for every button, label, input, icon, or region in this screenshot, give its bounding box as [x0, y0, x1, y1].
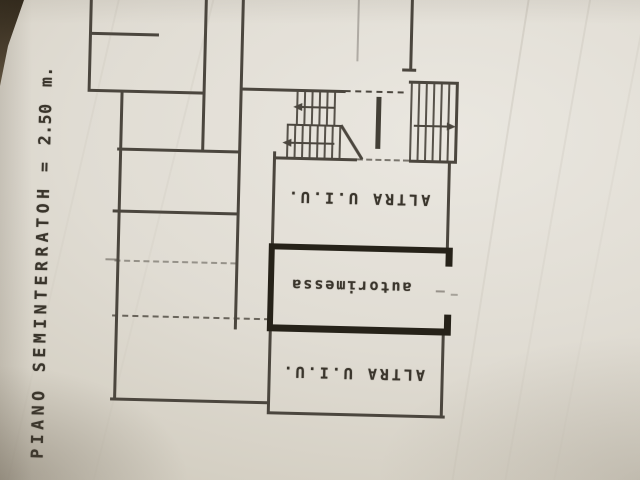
garage-wall-hook	[444, 315, 452, 336]
garage-wall-bottom	[267, 324, 451, 335]
wall	[267, 411, 445, 418]
wall	[88, 0, 93, 91]
wall	[113, 209, 240, 215]
stair-diagonal-cut-line	[340, 125, 363, 160]
wall	[356, 0, 360, 61]
wall	[201, 0, 207, 152]
staircase-central-upper-treads	[296, 91, 341, 127]
paper-tilt-wrapper: PIANO SEMINTERRATO H = 2.50 m.	[0, 0, 640, 480]
stair-arrow-left-icon	[293, 102, 302, 110]
wall	[110, 397, 269, 404]
wall	[117, 148, 240, 154]
stair-arrow-left-icon	[282, 138, 291, 146]
stair-arrow-right-icon	[447, 122, 456, 130]
wall	[240, 0, 245, 90]
photographed-floor-plan: PIANO SEMINTERRATO H = 2.50 m.	[0, 0, 640, 480]
garage-wall-hook	[445, 248, 452, 267]
wall-dashed	[357, 158, 409, 161]
wall-dashed	[112, 314, 270, 320]
wall	[89, 32, 159, 37]
wall	[402, 68, 416, 71]
wall-stub	[375, 97, 381, 149]
wall-tick	[105, 258, 116, 260]
floor-plan-walls	[0, 0, 640, 480]
garage-wall-top	[269, 243, 453, 253]
wall	[88, 89, 205, 94]
wall-dashed	[114, 259, 236, 264]
wall-dashed	[345, 90, 404, 93]
wall	[409, 0, 413, 71]
garage-door-opening-mark	[451, 294, 458, 296]
wall	[234, 89, 242, 329]
wall	[113, 91, 123, 401]
